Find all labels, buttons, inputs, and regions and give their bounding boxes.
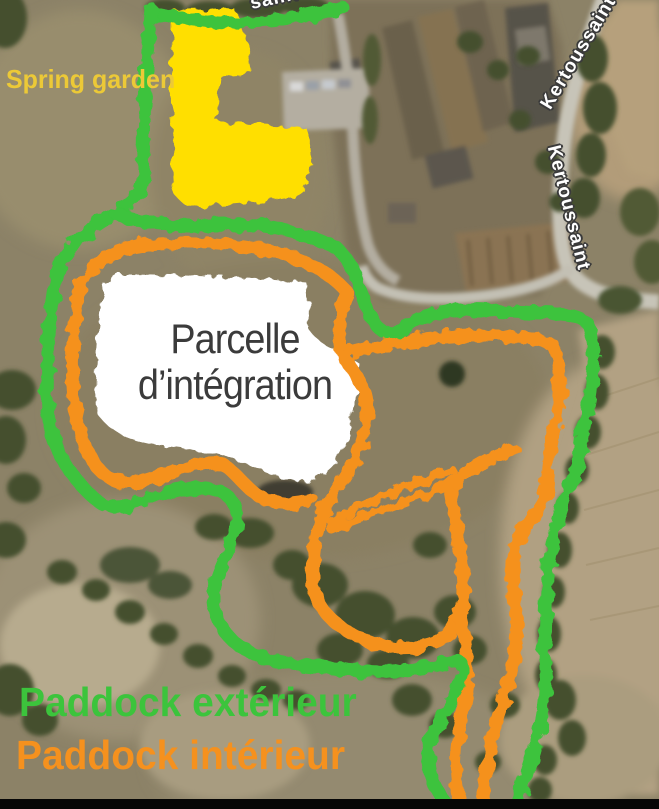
parked-car (322, 80, 335, 89)
paddock-exterior-label: Paddock extérieur (19, 679, 357, 726)
parked-car (338, 79, 351, 88)
bottom-bar (0, 799, 659, 809)
parcel-label-line2: d’intégration (109, 362, 361, 408)
parked-car (290, 82, 303, 91)
spring-garden-label: Spring garden (6, 64, 175, 95)
parking-area (282, 68, 371, 131)
map-canvas: Spring garden Parcelle d’intégration Pad… (0, 0, 659, 809)
integration-parcel-label: Parcelle d’intégration (109, 316, 361, 408)
round-bush (439, 361, 465, 387)
parked-car (306, 81, 319, 90)
parcel-label-line1: Parcelle (109, 316, 361, 362)
paddock-interior-label: Paddock intérieur (16, 732, 345, 779)
